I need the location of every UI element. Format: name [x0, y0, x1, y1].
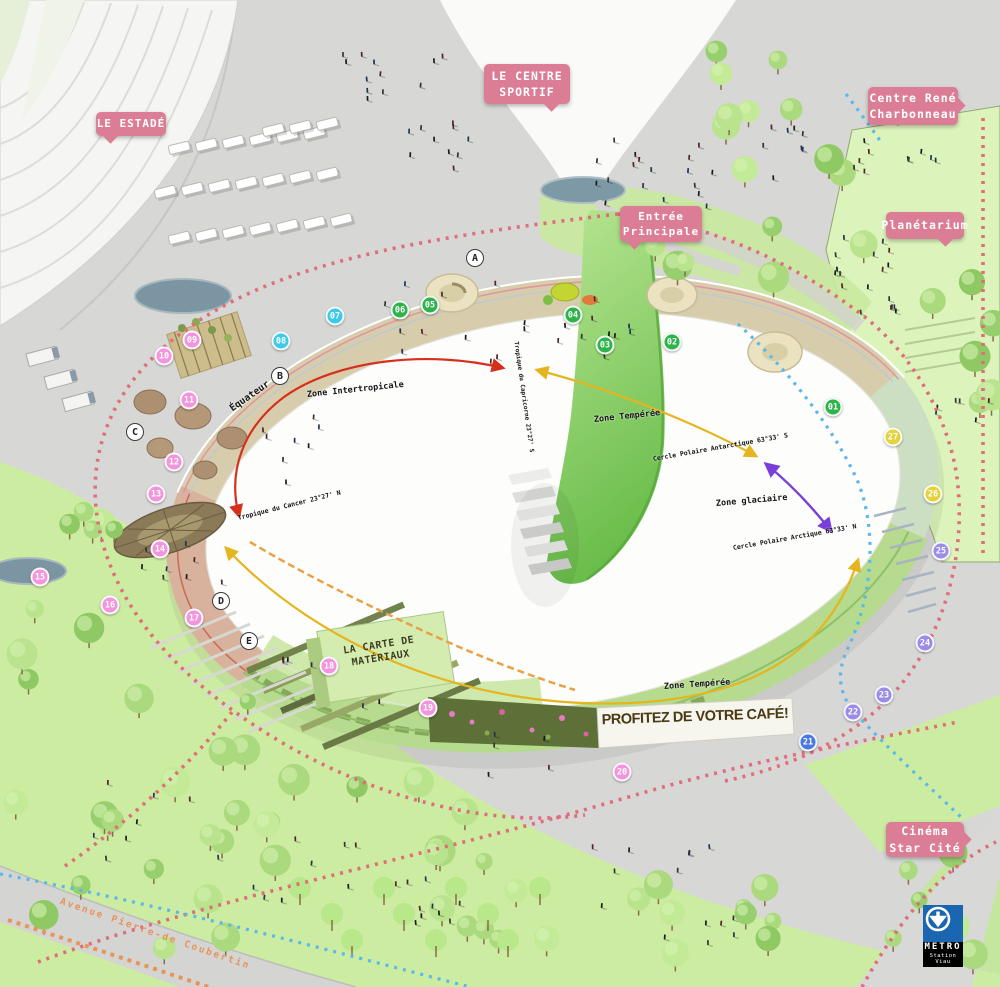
- callout-cinema-star-cite: CinémaStar Cité: [886, 822, 964, 857]
- numbered-marker-17: 17: [185, 609, 204, 628]
- numbered-marker-02: 02: [663, 333, 682, 352]
- zone-label-zone-temperee-sud: Zone Tempérée: [664, 677, 731, 692]
- numbered-marker-22: 22: [844, 703, 863, 722]
- numbered-marker-01: 01: [824, 398, 843, 417]
- numbered-marker-15: 15: [31, 568, 50, 587]
- numbered-marker-11: 11: [180, 391, 199, 410]
- letter-marker-A: A: [466, 249, 484, 267]
- callout-le-centre-sportif-label: SPORTIF: [499, 84, 554, 100]
- callout-centre-rene-charbonneau: Centre RenéCharbonneau: [868, 87, 958, 125]
- callout-entree-principale-label: Entrée: [638, 209, 684, 224]
- numbered-marker-21: 21: [799, 733, 818, 752]
- numbered-marker-09: 09: [183, 331, 202, 350]
- letter-marker-D: D: [212, 592, 230, 610]
- metro-station-marker: METRO Station Viau: [923, 905, 963, 967]
- letter-marker-C: C: [126, 423, 144, 441]
- zone-label-cercle-polaire-arctique: Cercle Polaire Arctique 63°33' N: [732, 522, 857, 552]
- site-plan: Avenue Pierre-de Coubertin METRO Station…: [0, 0, 1000, 987]
- callout-entree-principale: EntréePrincipale: [620, 206, 702, 242]
- numbered-marker-18: 18: [320, 657, 339, 676]
- wall-text-cafe-line: PROFITEZ DE VOTRE CAFÉ!: [599, 706, 791, 729]
- zone-label-zone-intertropicale: Zone Intertropicale: [306, 380, 404, 400]
- callout-entree-principale-label: Principale: [623, 224, 699, 239]
- callout-le-centre-sportif-label: LE CENTRE: [491, 68, 562, 84]
- callout-centre-rene-charbonneau-label: Charbonneau: [869, 106, 956, 122]
- letter-marker-B: B: [271, 367, 289, 385]
- numbered-marker-14: 14: [151, 540, 170, 559]
- zone-label-tropique-capricorne: Tropique du Capricorne 23°27' S: [513, 341, 536, 453]
- numbered-marker-19: 19: [419, 699, 438, 718]
- zone-label-cercle-polaire-antarctique: Cercle Polaire Antarctique 63°33' S: [652, 431, 788, 463]
- street-label: Avenue Pierre-de Coubertin: [58, 896, 251, 972]
- zone-label-equateur: Équateur: [228, 379, 272, 414]
- callout-cinema-star-cite-label: Cinéma: [901, 823, 949, 839]
- zone-label-tropique-cancer: Tropique du Cancer 23°27' N: [237, 489, 341, 522]
- callout-centre-rene-charbonneau-label: Centre René: [869, 90, 956, 106]
- metro-logo-icon: [923, 905, 963, 942]
- numbered-marker-06: 06: [391, 301, 410, 320]
- numbered-marker-05: 05: [421, 296, 440, 315]
- numbered-marker-04: 04: [564, 306, 583, 325]
- numbered-marker-03: 03: [596, 336, 615, 355]
- callout-cinema-star-cite-label: Star Cité: [889, 840, 960, 856]
- numbered-marker-07: 07: [326, 307, 345, 326]
- numbered-marker-08: 08: [272, 332, 291, 351]
- metro-station-name: Station Viau: [923, 953, 963, 965]
- zone-label-zone-temperee-nord: Zone Tempérée: [593, 408, 660, 425]
- numbered-marker-24: 24: [916, 634, 935, 653]
- callout-le-estade: LE ESTADÉ: [96, 112, 166, 136]
- numbered-marker-20: 20: [613, 763, 632, 782]
- letter-marker-E: E: [240, 632, 258, 650]
- numbered-marker-26: 26: [924, 485, 943, 504]
- numbered-marker-25: 25: [932, 542, 951, 561]
- callout-le-estade-label: LE ESTADÉ: [97, 116, 166, 131]
- callout-planetarium-label: Planétarium: [881, 217, 968, 233]
- numbered-marker-10: 10: [155, 347, 174, 366]
- annotation-overlay: Avenue Pierre-de Coubertin METRO Station…: [0, 0, 1000, 987]
- numbered-marker-23: 23: [875, 686, 894, 705]
- callout-planetarium: Planétarium: [886, 212, 964, 239]
- wall-text-cafe: PROFITEZ DE VOTRE CAFÉ!: [599, 706, 791, 729]
- zone-label-zone-glaciaire: Zone glaciaire: [716, 493, 788, 509]
- metro-label: METRO: [923, 943, 963, 953]
- numbered-marker-13: 13: [147, 485, 166, 504]
- callout-le-centre-sportif: LE CENTRESPORTIF: [484, 64, 570, 104]
- numbered-marker-12: 12: [165, 453, 184, 472]
- numbered-marker-16: 16: [101, 596, 120, 615]
- numbered-marker-27: 27: [884, 428, 903, 447]
- wall-text-materials: LA CARTE DEMATÉRIAUX: [342, 635, 417, 671]
